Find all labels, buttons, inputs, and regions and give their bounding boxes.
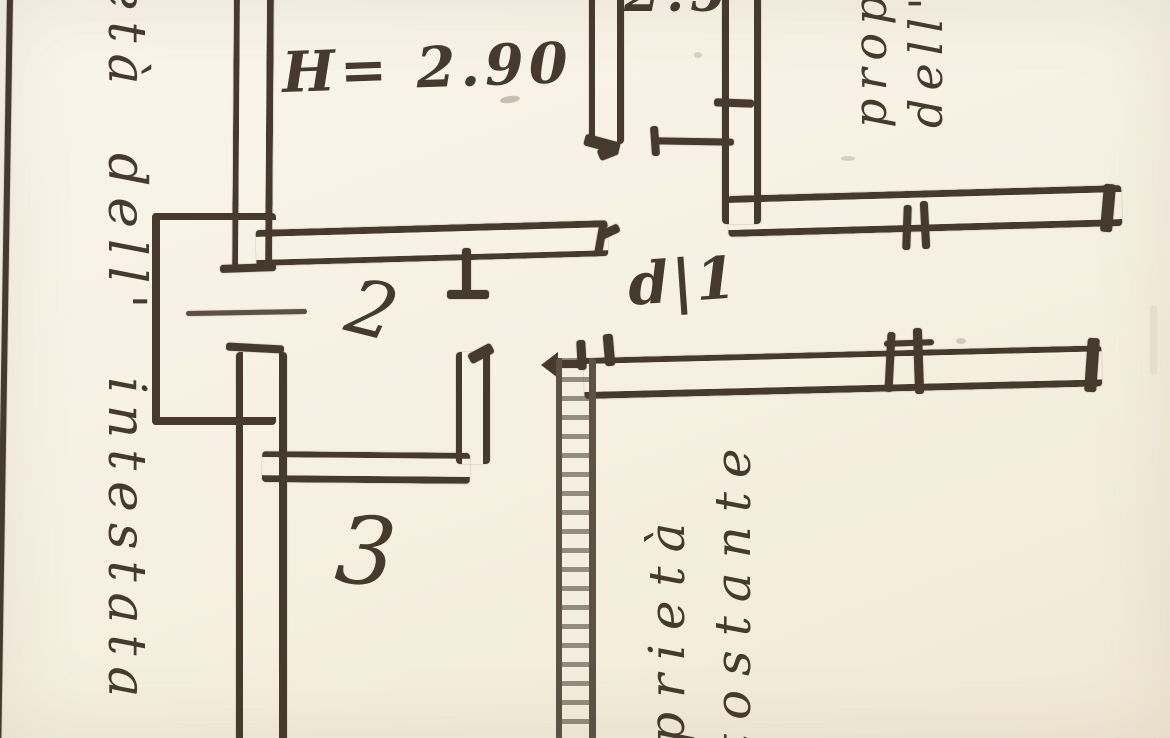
bottom-middle-note: proprietà sottostante [634, 412, 766, 738]
smudge-dot-1 [694, 52, 702, 58]
ceiling-height-label: H= 2.90 [281, 35, 573, 101]
top-right-note: proprietà dell' [842, 0, 954, 128]
room-number-3: 3 [332, 504, 400, 603]
window-band-upper-tick1 [902, 205, 912, 250]
door-stub-bar [447, 290, 489, 299]
page-border-line [0, 0, 13, 738]
unit-label-d1: d|1 [626, 248, 741, 314]
party-wall-hatched [556, 358, 596, 738]
smudge-streak-right [1150, 305, 1157, 375]
wall-corridor-right [722, 0, 761, 224]
wall-room3-right [456, 352, 490, 464]
floorplan-sketch-canvas: prietà dell' intestata proprietà dell' p… [0, 0, 1170, 738]
smudge-dot-2 [956, 338, 966, 344]
door-leaf-end-tick [650, 126, 660, 156]
window-band-lower [583, 345, 1102, 399]
wall-corridor-right-sill-tick [714, 98, 754, 107]
window-band-lower-topbar [884, 339, 934, 347]
door-stub-stem [462, 248, 471, 294]
left-margin-note: prietà dell' intestata [100, 0, 152, 738]
room-number-2: 2 [340, 267, 405, 352]
bottom-note-line1: proprietà [634, 412, 700, 738]
wall-room2-top [255, 220, 608, 266]
smudge-dash-2 [841, 156, 855, 161]
window-band-lower-tick2 [913, 328, 924, 394]
top-right-note-line1: proprietà [842, 0, 898, 128]
hatch-wall-jamb2 [603, 334, 616, 367]
bottom-note-line2: sottostante [700, 412, 766, 738]
top-dimension-fragment: 2.5 [624, 0, 732, 20]
top-right-note-line2: dell' [898, 0, 954, 128]
wall-corridor-left [589, 0, 624, 144]
wall-room3-bottom [262, 451, 470, 484]
